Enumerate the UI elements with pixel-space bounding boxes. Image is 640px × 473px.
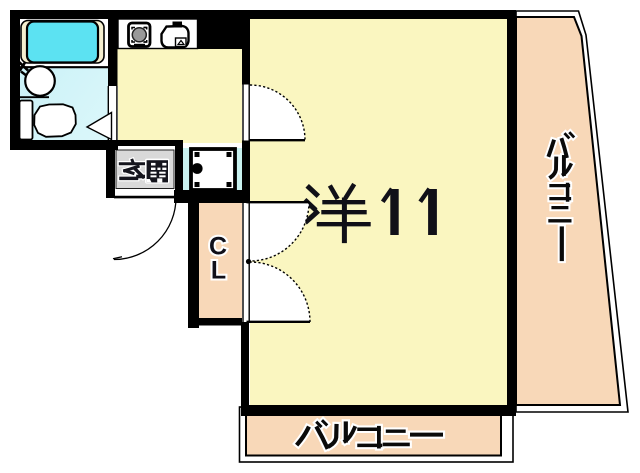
svg-text:L: L — [211, 257, 226, 285]
